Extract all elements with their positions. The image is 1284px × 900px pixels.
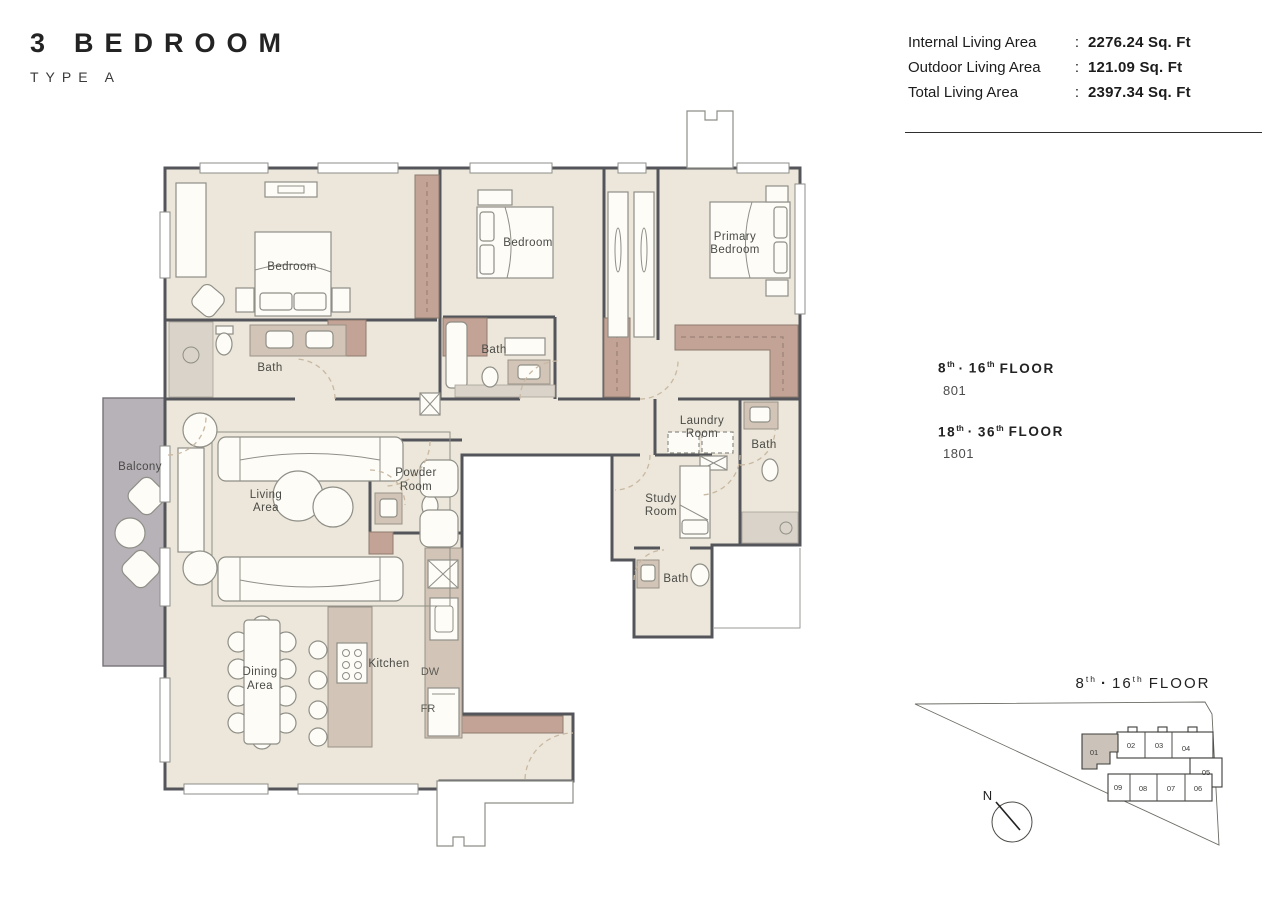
svg-text:07: 07 xyxy=(1167,784,1175,793)
svg-text:Primary: Primary xyxy=(714,231,756,243)
page-subtitle: TYPE A xyxy=(30,69,292,85)
svg-text:Kitchen: Kitchen xyxy=(368,658,409,670)
north-arrow-icon: N xyxy=(983,788,1032,842)
svg-text:Powder: Powder xyxy=(395,467,436,479)
key-plan: 01 02 03 04 05 06 07 08 09 N xyxy=(915,702,1222,845)
area-row-outdoor: Outdoor Living Area : 121.09 Sq. Ft xyxy=(908,59,1268,84)
floor-range-label: 18th·36thFLOOR xyxy=(938,424,1064,440)
svg-text:Bath: Bath xyxy=(257,362,282,374)
svg-text:Bedroom: Bedroom xyxy=(710,244,759,256)
svg-text:Bath: Bath xyxy=(481,344,506,356)
area-row-total: Total Living Area : 2397.34 Sq. Ft xyxy=(908,84,1268,109)
svg-text:Room: Room xyxy=(686,428,718,440)
svg-text:Room: Room xyxy=(400,481,432,493)
svg-text:Area: Area xyxy=(253,502,279,514)
svg-text:05: 05 xyxy=(1202,768,1210,777)
svg-text:08: 08 xyxy=(1139,784,1147,793)
svg-text:Laundry: Laundry xyxy=(680,415,724,427)
keyplan-title: 8th·16thFLOOR xyxy=(1058,674,1228,692)
svg-text:03: 03 xyxy=(1155,741,1163,750)
svg-text:06: 06 xyxy=(1194,784,1202,793)
floor-range-8-16: 8th·16thFLOOR 801 xyxy=(938,360,1064,398)
floor-plan-drawing: Bedroom Bedroom Primary Bedroom Bath Bat… xyxy=(0,0,1284,900)
unit-number: 1801 xyxy=(943,446,1064,461)
svg-text:Living: Living xyxy=(250,489,282,501)
divider-line xyxy=(905,132,1262,133)
svg-text:01: 01 xyxy=(1090,748,1098,757)
area-summary: Internal Living Area : 2276.24 Sq. Ft Ou… xyxy=(908,34,1268,109)
unit-number: 801 xyxy=(943,383,1064,398)
svg-text:DW: DW xyxy=(421,666,440,678)
floorplan-page: Bedroom Bedroom Primary Bedroom Bath Bat… xyxy=(0,0,1284,900)
title-name: BEDROOM xyxy=(74,28,292,59)
area-row-internal: Internal Living Area : 2276.24 Sq. Ft xyxy=(908,34,1268,59)
svg-text:02: 02 xyxy=(1127,741,1135,750)
svg-text:Balcony: Balcony xyxy=(118,461,162,473)
svg-text:Bath: Bath xyxy=(751,439,776,451)
title-number: 3 xyxy=(30,28,56,59)
header: 3 BEDROOM TYPE A xyxy=(30,28,292,85)
svg-text:Study: Study xyxy=(645,493,676,505)
floor-range-18-36: 18th·36thFLOOR 1801 xyxy=(938,424,1064,462)
svg-text:Bedroom: Bedroom xyxy=(267,261,316,273)
shaft-box xyxy=(420,393,440,415)
page-title: 3 BEDROOM xyxy=(30,28,292,59)
svg-text:Room: Room xyxy=(645,506,677,518)
svg-text:Area: Area xyxy=(247,680,273,692)
svg-text:Bath: Bath xyxy=(663,573,688,585)
svg-text:Bedroom: Bedroom xyxy=(503,237,552,249)
svg-text:09: 09 xyxy=(1114,783,1122,792)
svg-text:N: N xyxy=(983,788,993,803)
balcony-area xyxy=(103,398,169,666)
floor-range-label: 8th·16thFLOOR xyxy=(938,360,1064,376)
floor-availability: 8th·16thFLOOR 801 18th·36thFLOOR 1801 xyxy=(938,360,1064,487)
svg-text:FR: FR xyxy=(421,703,436,715)
svg-text:Dining: Dining xyxy=(242,666,277,678)
svg-text:04: 04 xyxy=(1182,744,1190,753)
